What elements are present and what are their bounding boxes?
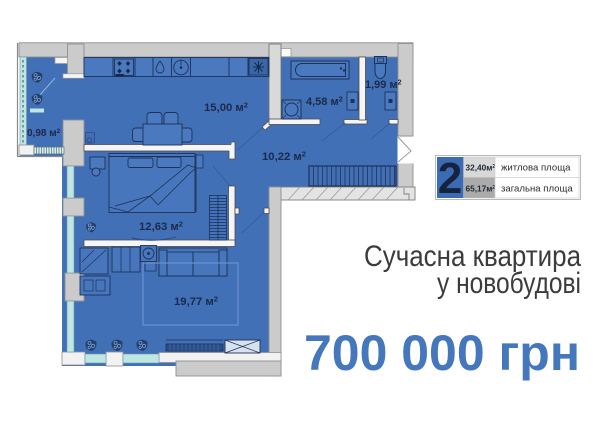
svg-text:у новобудові: у новобудові — [437, 267, 581, 300]
svg-text:19,77 м2: 19,77 м2 — [174, 295, 218, 309]
svg-text:0,98 м2: 0,98 м2 — [27, 128, 61, 139]
svg-text:12,63 м2: 12,63 м2 — [139, 220, 183, 234]
svg-text:2: 2 — [438, 154, 462, 203]
svg-text:загальна площа: загальна площа — [501, 184, 573, 195]
svg-text:10,22 м2: 10,22 м2 — [262, 150, 306, 164]
svg-text:700 000 грн: 700 000 грн — [304, 325, 580, 381]
svg-text:32,40м2: 32,40м2 — [466, 163, 496, 173]
svg-text:1,99 м2: 1,99 м2 — [365, 79, 402, 91]
svg-text:65,17м2: 65,17м2 — [466, 184, 496, 194]
svg-text:житлова площа: житлова площа — [501, 163, 571, 174]
svg-text:15,00 м2: 15,00 м2 — [204, 101, 248, 115]
svg-text:4,58 м2: 4,58 м2 — [306, 95, 343, 109]
